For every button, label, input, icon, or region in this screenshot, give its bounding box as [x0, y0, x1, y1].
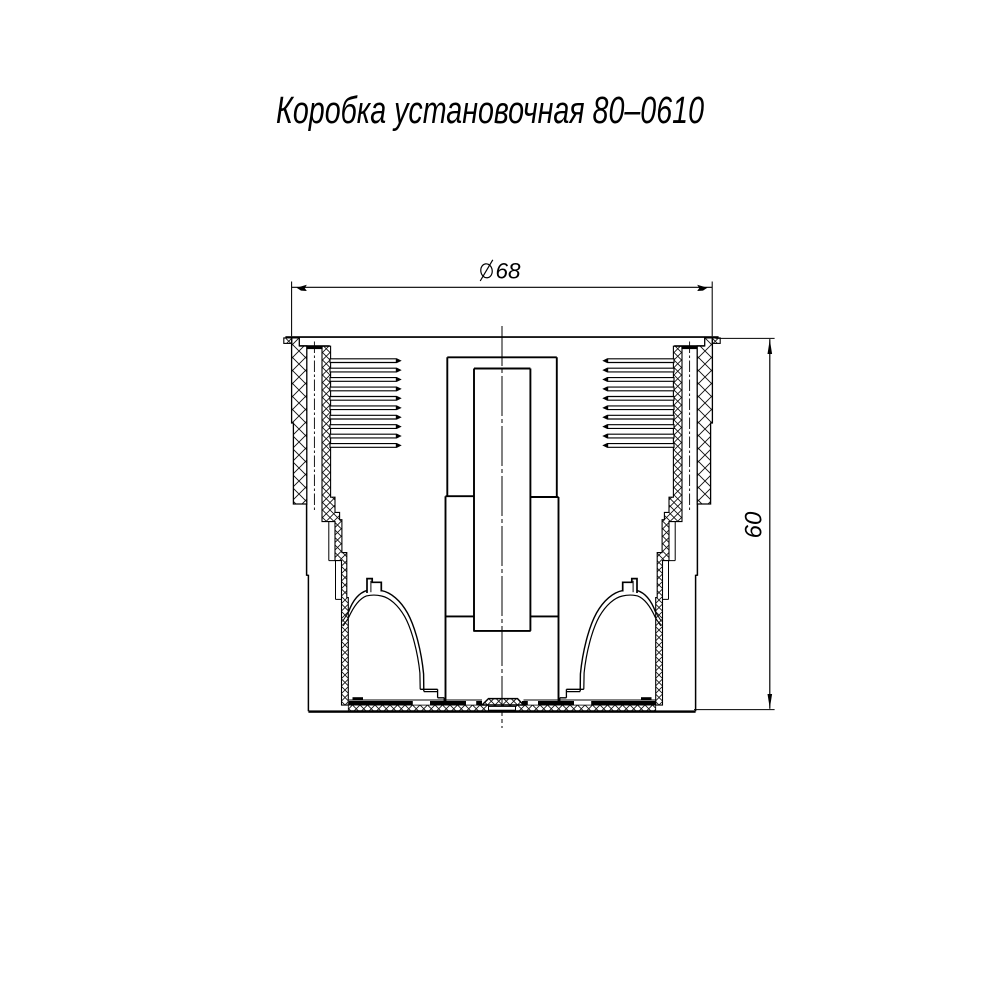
svg-text:Коробка установочная 80–0610: Коробка установочная 80–0610: [276, 90, 704, 132]
svg-text:68: 68: [496, 259, 521, 284]
svg-text:60: 60: [740, 511, 767, 538]
